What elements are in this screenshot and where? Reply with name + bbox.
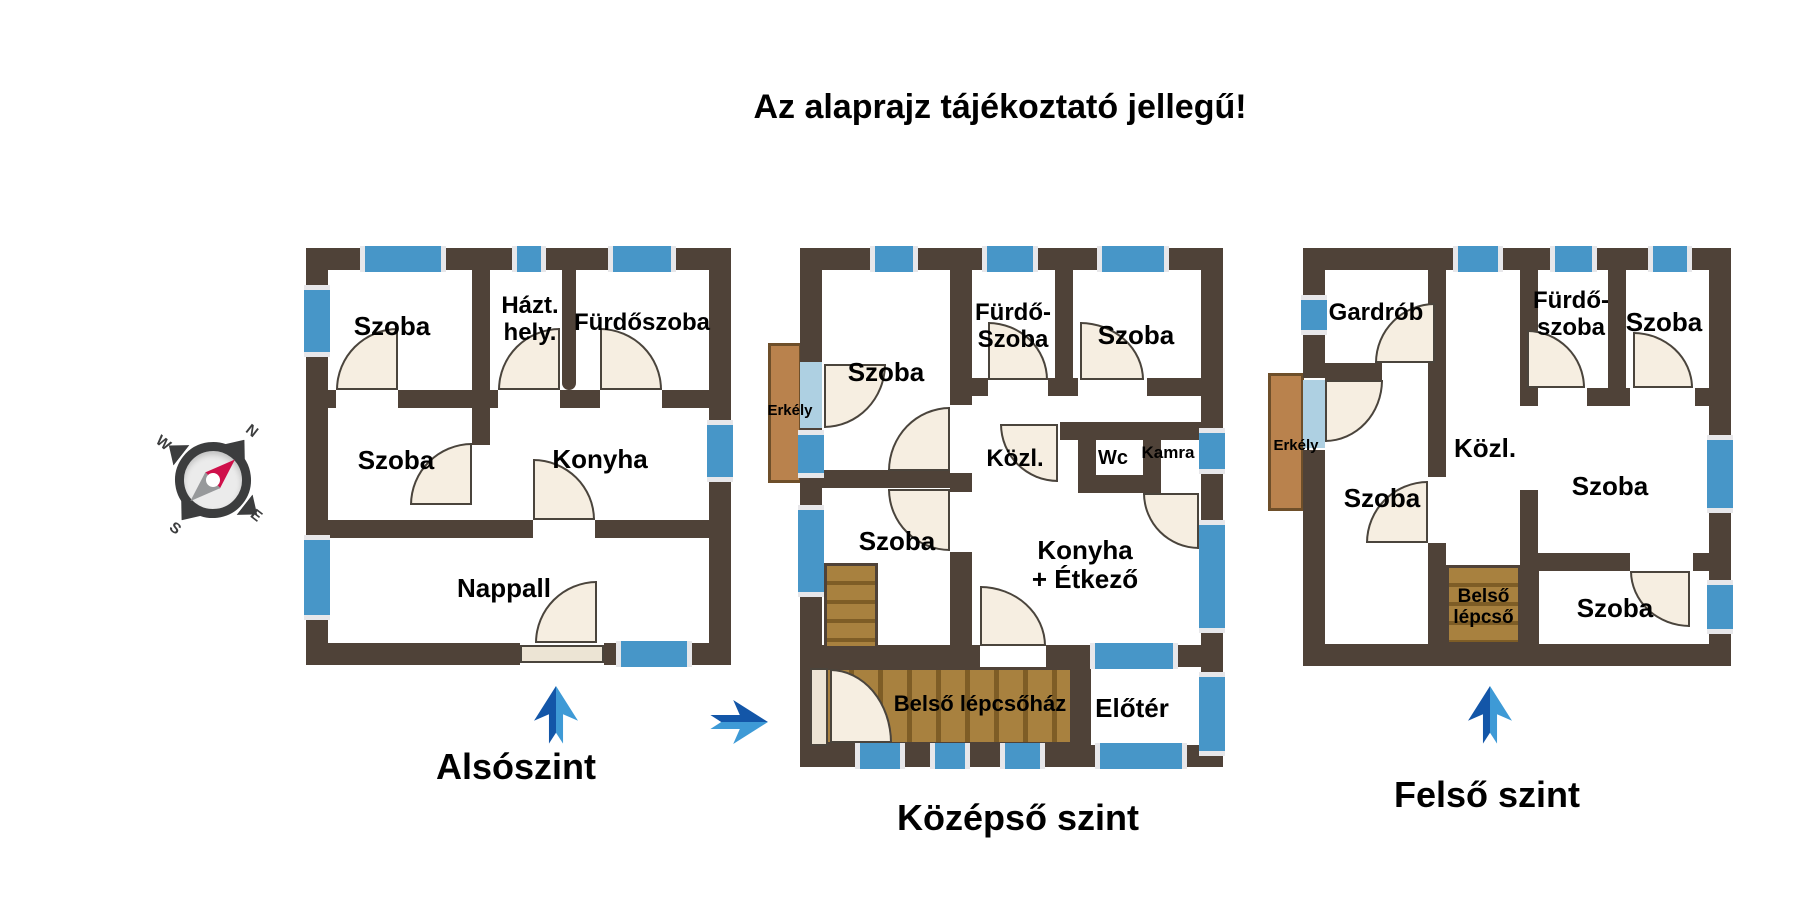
room-label: Nappall xyxy=(424,574,584,603)
window xyxy=(304,535,330,620)
window xyxy=(1095,743,1187,769)
wall xyxy=(1303,644,1731,666)
wall xyxy=(950,473,972,492)
entry-door-leaf xyxy=(810,668,828,746)
window xyxy=(1199,520,1225,633)
room-label: Gardrób xyxy=(1306,300,1446,327)
wall xyxy=(972,378,988,396)
wall xyxy=(1147,378,1201,396)
up-arrow-icon xyxy=(534,686,578,746)
room-label: Kamra xyxy=(1128,443,1208,462)
wall xyxy=(1428,565,1446,645)
room-label: Szoba xyxy=(322,312,462,341)
door-arc xyxy=(888,407,950,471)
room-label: Konyha + Étkező xyxy=(985,536,1185,594)
wall xyxy=(1325,363,1382,381)
wall xyxy=(1695,388,1709,406)
entry-door-leaf xyxy=(520,645,604,663)
wall xyxy=(662,390,709,408)
wall xyxy=(1303,450,1325,666)
room-label: Belső lépcső xyxy=(1446,586,1521,629)
window xyxy=(855,743,905,769)
wall xyxy=(306,643,520,665)
wall xyxy=(1693,553,1709,571)
window xyxy=(1707,435,1733,513)
room-label: Szoba xyxy=(1594,308,1734,337)
window xyxy=(1199,672,1225,756)
floor-label-lower: Alsószint xyxy=(366,746,666,788)
window xyxy=(798,505,824,597)
wall xyxy=(800,248,822,362)
floor-label-middle: Középső szint xyxy=(858,797,1178,839)
room-label: Szoba xyxy=(1066,321,1206,350)
room-label: Szoba xyxy=(816,358,956,387)
wall xyxy=(1078,475,1161,493)
window xyxy=(930,743,970,769)
door-arc xyxy=(1325,380,1383,442)
compass-needle-icon xyxy=(135,402,290,557)
door-arc xyxy=(600,328,662,390)
window xyxy=(360,246,446,272)
door-arc xyxy=(980,586,1046,646)
wall xyxy=(950,552,972,655)
room-label: Közl. xyxy=(1435,434,1535,463)
wall xyxy=(560,390,600,408)
compass-rose: N E S W xyxy=(136,403,290,557)
wall xyxy=(1521,565,1539,645)
window xyxy=(512,246,546,272)
room-label: Szoba xyxy=(1545,594,1685,623)
room-label: Fürdő- Szoba xyxy=(953,300,1073,354)
right-arrow-icon xyxy=(708,700,768,744)
room-label: Szoba xyxy=(827,527,967,556)
wall xyxy=(1428,543,1446,565)
room-label: Fürdőszoba xyxy=(572,310,712,337)
room-label: Házt. hely. xyxy=(478,293,582,347)
window xyxy=(798,430,824,478)
window xyxy=(1648,246,1692,272)
window xyxy=(1097,246,1169,272)
window xyxy=(1453,246,1503,272)
room-label: Konyha xyxy=(530,445,670,474)
window xyxy=(982,246,1038,272)
wall xyxy=(328,520,533,538)
room-label: Erkély xyxy=(1264,438,1328,455)
window xyxy=(616,641,692,667)
window xyxy=(870,246,918,272)
wall xyxy=(328,390,336,408)
window xyxy=(1550,246,1597,272)
window xyxy=(1707,580,1733,634)
wall xyxy=(472,408,490,445)
window xyxy=(707,420,733,482)
window xyxy=(1000,743,1045,769)
window xyxy=(608,246,676,272)
wall xyxy=(1060,422,1201,440)
room-label: Szoba xyxy=(326,446,466,475)
floor-label-upper: Felső szint xyxy=(1337,774,1637,816)
room-label: Közl. xyxy=(965,446,1065,473)
page-title: Az alaprajz tájékoztató jellegű! xyxy=(650,88,1350,127)
room-label: Erkély xyxy=(758,403,822,420)
small-stairs xyxy=(824,563,878,649)
wall xyxy=(595,520,709,538)
floorplan-canvas: Az alaprajz tájékoztató jellegű! N E S W xyxy=(0,0,1800,900)
window xyxy=(1090,643,1178,669)
wall xyxy=(822,470,950,488)
wall xyxy=(398,390,498,408)
door-arc xyxy=(1633,332,1693,388)
room-label: Szoba xyxy=(1312,484,1452,513)
room-label: Előtér xyxy=(1062,694,1202,723)
room-label: Szoba xyxy=(1540,472,1680,501)
up-arrow-icon xyxy=(1468,686,1512,746)
